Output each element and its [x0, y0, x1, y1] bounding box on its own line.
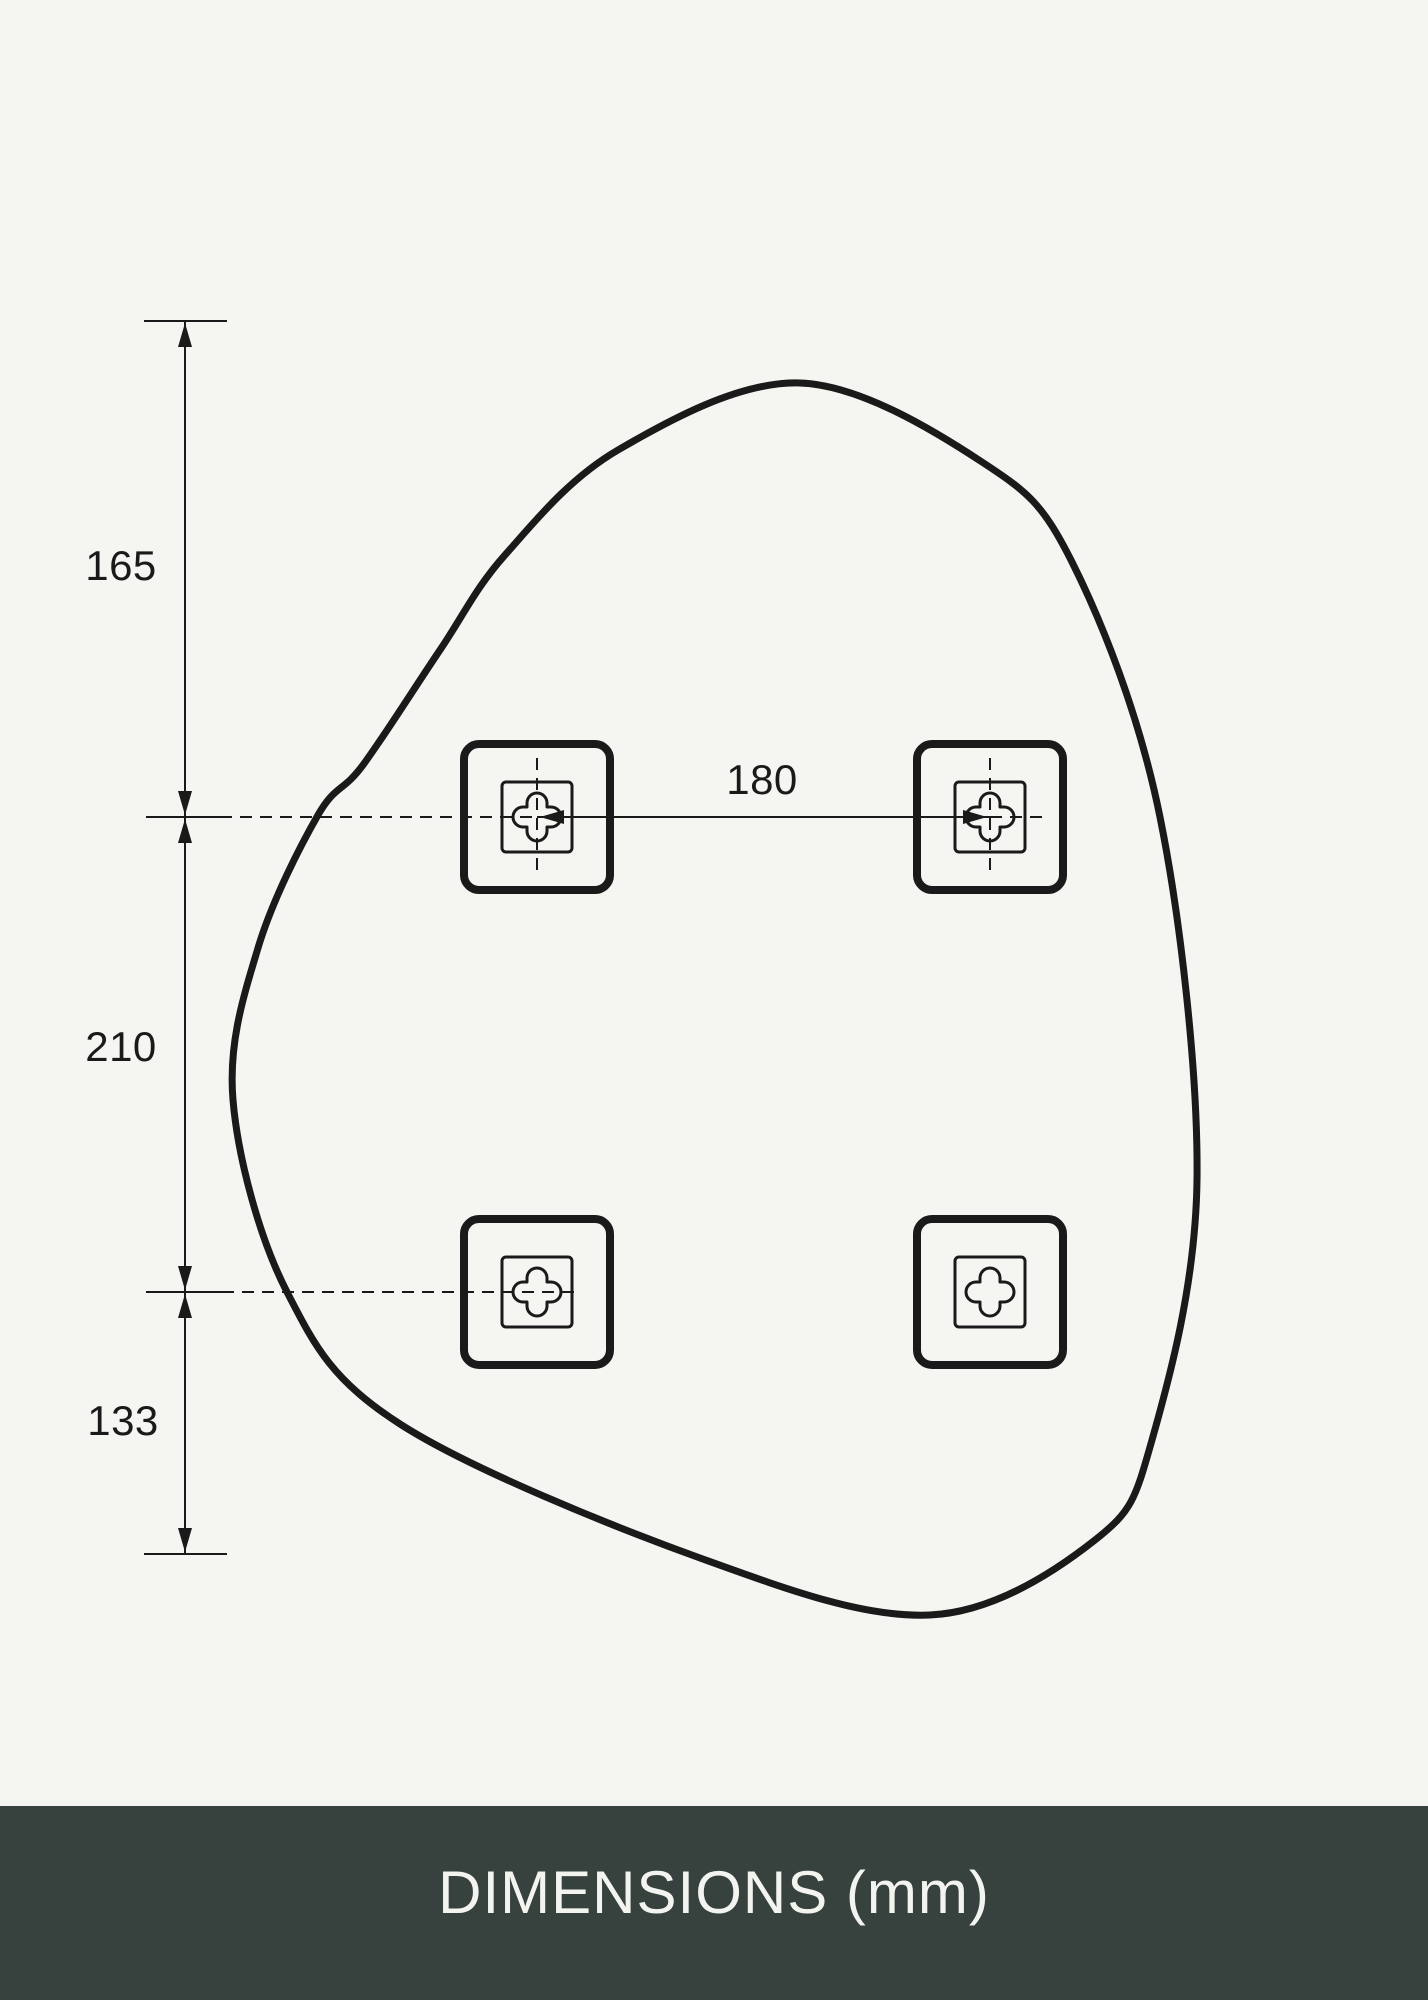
footer-title: DIMENSIONS (mm) — [438, 1858, 990, 1927]
dimension-arrowhead — [178, 1294, 192, 1318]
dimension-label-horizontal: 180 — [726, 756, 798, 804]
dimension-label-vertical-1: 165 — [85, 542, 157, 590]
diagram-canvas: 165 210 133 180 — [0, 0, 1428, 2000]
mount-cross-slot — [966, 1268, 1014, 1316]
mount-bracket-outer — [917, 1219, 1063, 1365]
dimension-label-vertical-2: 210 — [85, 1023, 157, 1071]
dimension-arrowhead — [178, 323, 192, 347]
dimension-label-vertical-3: 133 — [87, 1397, 159, 1445]
footer-bar: DIMENSIONS (mm) — [0, 1806, 1428, 2000]
dimension-diagram-page: 165 210 133 180 DIMENSIONS (mm) — [0, 0, 1428, 2000]
dimension-arrowhead — [178, 791, 192, 815]
mirror-outline — [232, 383, 1197, 1615]
diagram-drawing — [0, 0, 1428, 2000]
dimension-arrowhead — [178, 1528, 192, 1552]
dimension-arrowhead — [178, 819, 192, 843]
dimension-arrowhead — [178, 1266, 192, 1290]
